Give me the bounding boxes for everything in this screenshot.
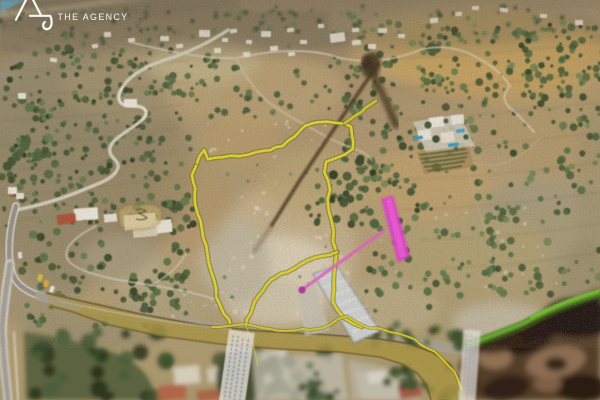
svg-text:THE AGENCY: THE AGENCY	[58, 12, 129, 22]
